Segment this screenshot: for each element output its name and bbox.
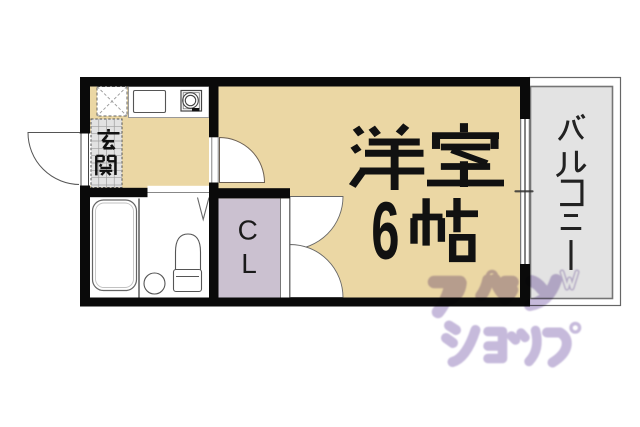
svg-text:6: 6 <box>371 185 399 276</box>
svg-text:L: L <box>241 248 257 279</box>
svg-text:C: C <box>238 215 258 246</box>
